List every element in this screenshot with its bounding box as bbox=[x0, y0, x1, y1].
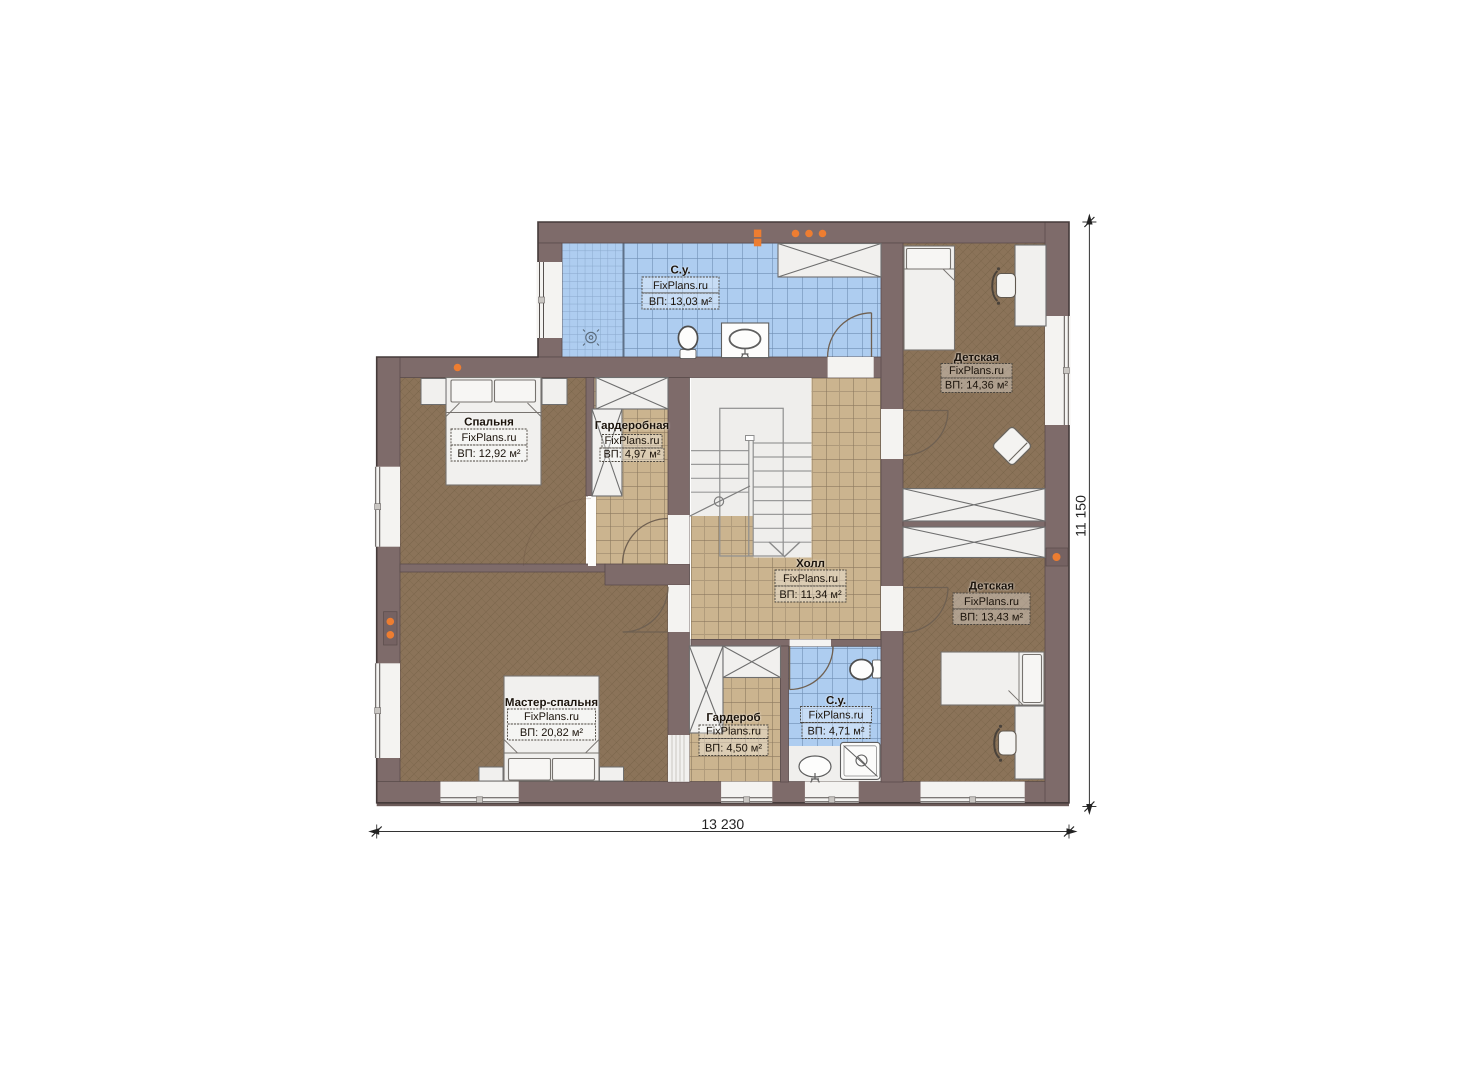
svg-text:ВП: 4,97 м²: ВП: 4,97 м² bbox=[603, 448, 660, 460]
svg-text:ВП: 20,82 м²: ВП: 20,82 м² bbox=[520, 727, 584, 739]
svg-text:FixPlans.ru: FixPlans.ru bbox=[524, 711, 579, 723]
svg-text:С.у.: С.у. bbox=[826, 695, 846, 707]
svg-text:FixPlans.ru: FixPlans.ru bbox=[808, 709, 863, 721]
svg-text:FixPlans.ru: FixPlans.ru bbox=[706, 725, 761, 737]
svg-text:ВП: 13,03 м²: ВП: 13,03 м² bbox=[649, 296, 713, 308]
svg-text:FixPlans.ru: FixPlans.ru bbox=[949, 365, 1004, 377]
svg-text:Спальня: Спальня bbox=[464, 417, 514, 429]
svg-text:FixPlans.ru: FixPlans.ru bbox=[604, 435, 659, 447]
svg-text:Мастер-спальня: Мастер-спальня bbox=[505, 697, 598, 709]
svg-text:11 150: 11 150 bbox=[1072, 495, 1088, 537]
svg-text:FixPlans.ru: FixPlans.ru bbox=[964, 596, 1019, 608]
svg-text:13 230: 13 230 bbox=[701, 816, 744, 832]
svg-text:ВП: 11,34 м²: ВП: 11,34 м² bbox=[779, 589, 842, 601]
svg-text:FixPlans.ru: FixPlans.ru bbox=[783, 573, 838, 585]
svg-text:FixPlans.ru: FixPlans.ru bbox=[653, 280, 708, 292]
svg-text:Детская: Детская bbox=[954, 352, 999, 364]
svg-text:ВП: 4,71 м²: ВП: 4,71 м² bbox=[807, 725, 864, 737]
svg-text:ВП: 14,36 м²: ВП: 14,36 м² bbox=[945, 379, 1009, 391]
svg-text:FixPlans.ru: FixPlans.ru bbox=[461, 432, 516, 444]
svg-text:ВП: 13,43 м²: ВП: 13,43 м² bbox=[960, 611, 1024, 623]
svg-text:ВП: 4,50 м²: ВП: 4,50 м² bbox=[705, 742, 762, 754]
svg-text:Холл: Холл bbox=[796, 558, 825, 570]
svg-text:Гардероб: Гардероб bbox=[706, 712, 760, 724]
svg-text:С.у.: С.у. bbox=[670, 265, 690, 277]
svg-text:ВП: 12,92 м²: ВП: 12,92 м² bbox=[457, 448, 521, 460]
svg-text:Гардеробная: Гардеробная bbox=[595, 420, 669, 432]
svg-text:Детская: Детская bbox=[969, 581, 1014, 593]
